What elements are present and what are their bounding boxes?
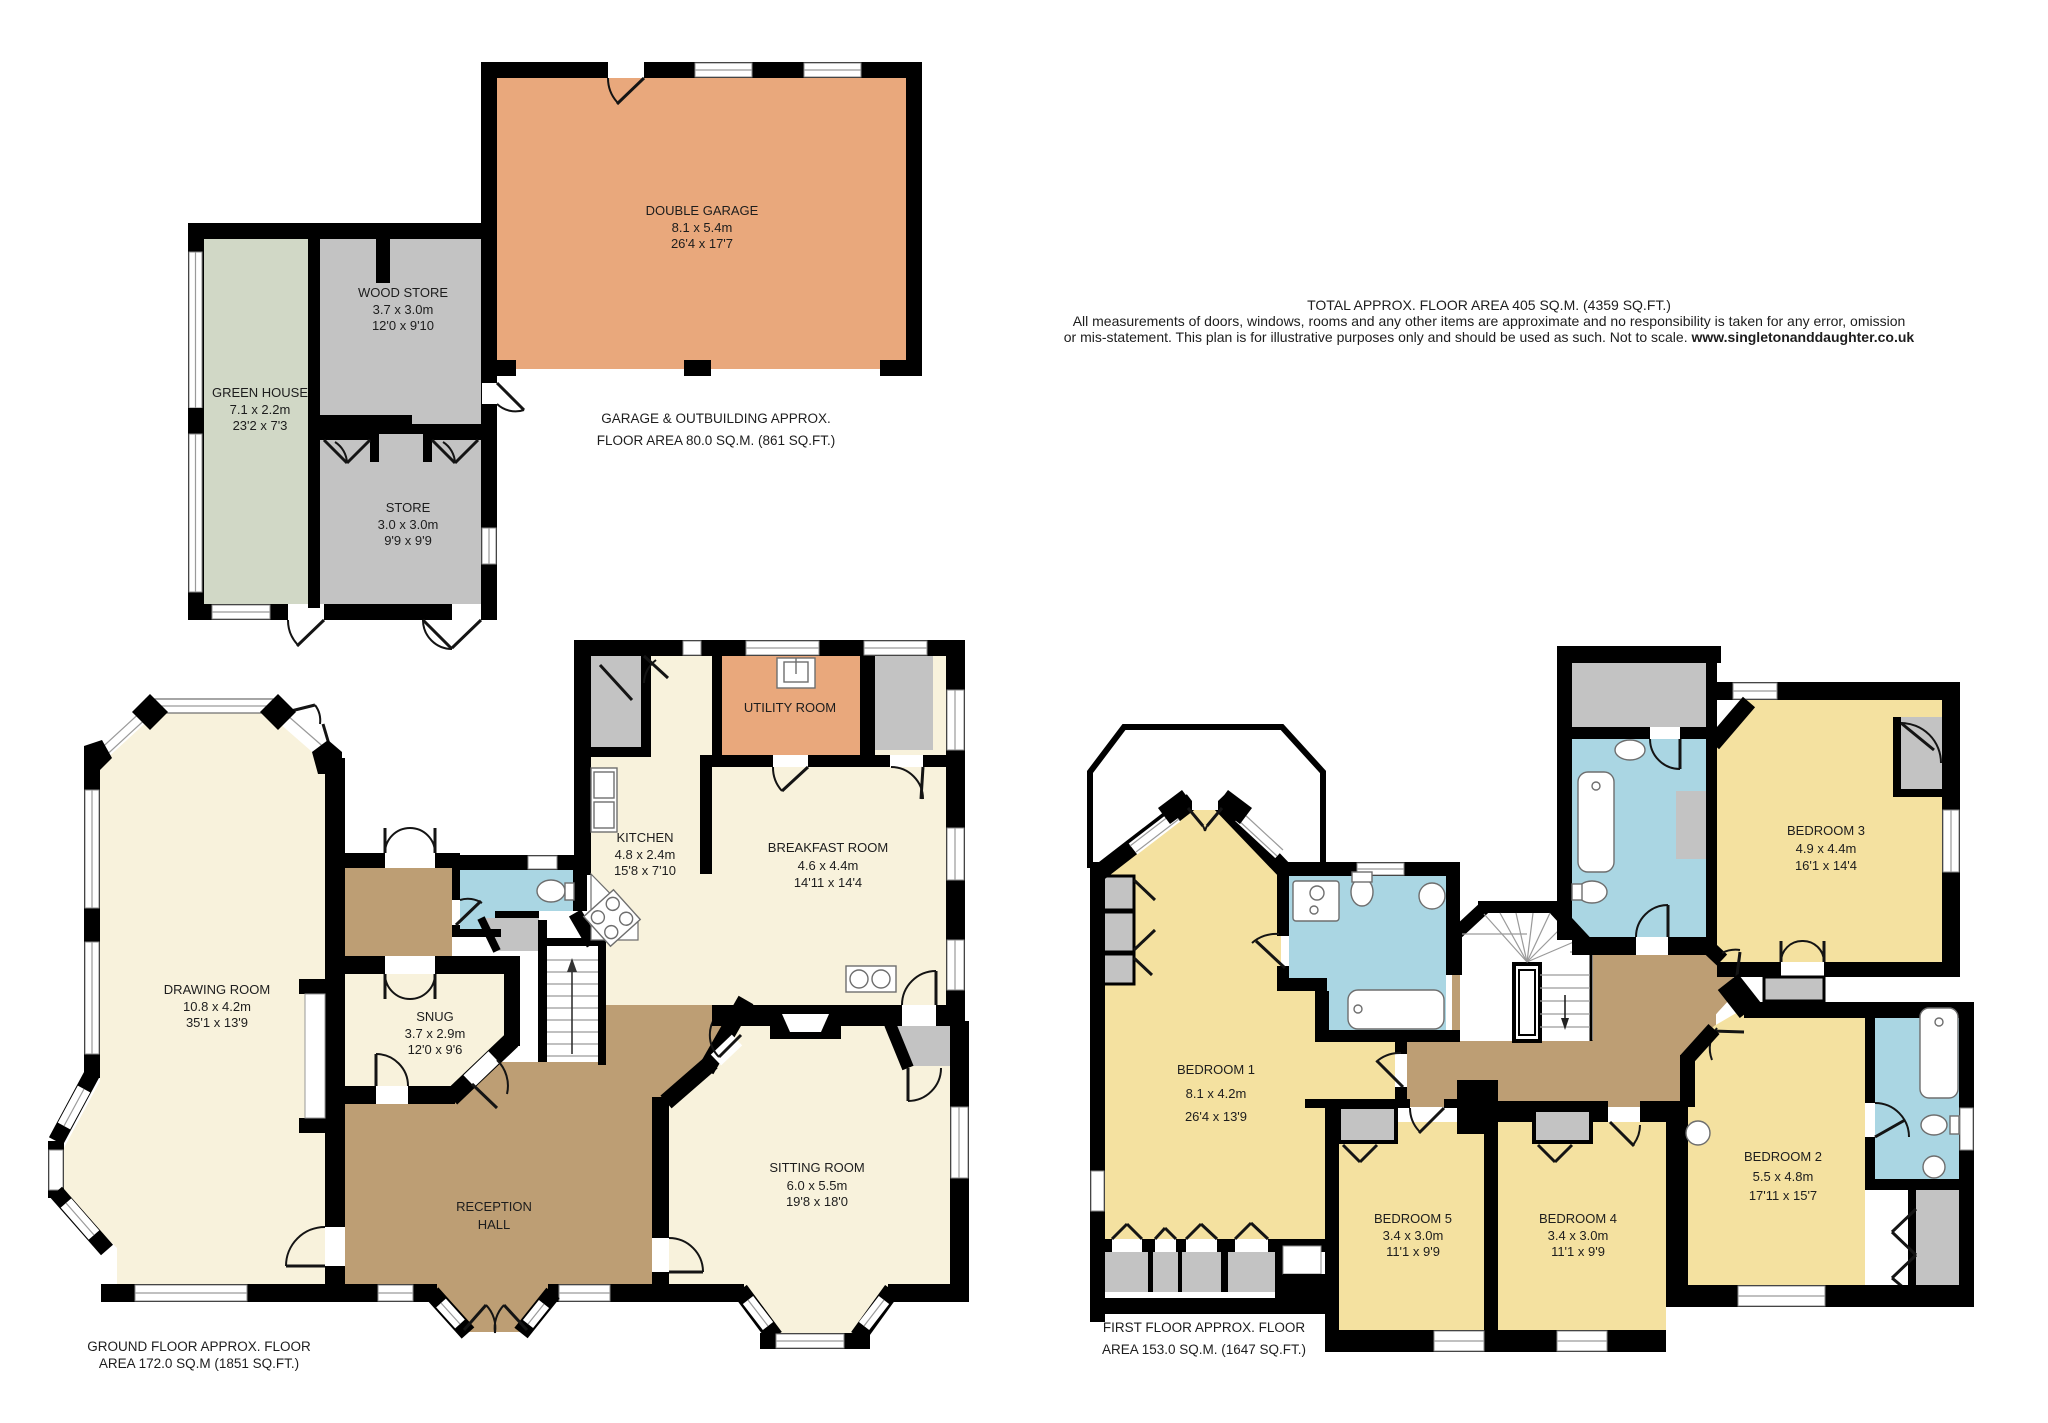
svg-text:26'4 x 17'7: 26'4 x 17'7: [671, 236, 733, 251]
svg-text:SNUG: SNUG: [416, 1009, 454, 1024]
svg-text:5.5 x 4.8m: 5.5 x 4.8m: [1753, 1169, 1814, 1184]
svg-text:8.1 x 5.4m: 8.1 x 5.4m: [672, 220, 733, 235]
svg-text:DRAWING ROOM: DRAWING ROOM: [164, 982, 270, 997]
svg-text:TOTAL APPROX. FLOOR AREA 405 S: TOTAL APPROX. FLOOR AREA 405 SQ.M. (4359…: [1307, 297, 1671, 313]
svg-text:STORE: STORE: [386, 500, 431, 515]
svg-text:KITCHEN: KITCHEN: [616, 830, 673, 845]
svg-text:BEDROOM 4: BEDROOM 4: [1539, 1211, 1617, 1226]
svg-text:16'1 x 14'4: 16'1 x 14'4: [1795, 858, 1857, 873]
svg-text:SITTING ROOM: SITTING ROOM: [769, 1160, 864, 1175]
svg-text:4.9 x 4.4m: 4.9 x 4.4m: [1796, 841, 1857, 856]
svg-text:WOOD STORE: WOOD STORE: [358, 285, 448, 300]
svg-text:RECEPTION: RECEPTION: [456, 1199, 532, 1214]
svg-text:14'11 x 14'4: 14'11 x 14'4: [794, 875, 862, 890]
svg-text:or mis-statement. This plan is: or mis-statement. This plan is for illus…: [1064, 329, 1915, 345]
svg-text:10.8 x 4.2m: 10.8 x 4.2m: [183, 999, 251, 1014]
svg-text:BEDROOM 5: BEDROOM 5: [1374, 1211, 1452, 1226]
svg-text:UTILITY ROOM: UTILITY ROOM: [744, 700, 836, 715]
svg-text:7.1 x 2.2m: 7.1 x 2.2m: [230, 402, 291, 417]
svg-text:4.8 x 2.4m: 4.8 x 2.4m: [615, 847, 676, 862]
svg-text:35'1 x 13'9: 35'1 x 13'9: [186, 1015, 248, 1030]
svg-text:12'0 x 9'6: 12'0 x 9'6: [408, 1042, 463, 1057]
svg-text:6.0 x 5.5m: 6.0 x 5.5m: [787, 1178, 848, 1193]
svg-text:3.4 x 3.0m: 3.4 x 3.0m: [1548, 1228, 1609, 1243]
svg-text:11'1 x 9'9: 11'1 x 9'9: [1386, 1244, 1440, 1259]
svg-text:BEDROOM 1: BEDROOM 1: [1177, 1062, 1255, 1077]
svg-text:AREA 153.0 SQ.M. (1647 SQ.FT.): AREA 153.0 SQ.M. (1647 SQ.FT.): [1102, 1342, 1306, 1357]
svg-text:23'2 x 7'3: 23'2 x 7'3: [233, 418, 288, 433]
svg-text:GARAGE & OUTBUILDING APPROX.: GARAGE & OUTBUILDING APPROX.: [601, 411, 831, 426]
svg-text:HALL: HALL: [478, 1217, 511, 1232]
svg-text:3.0 x 3.0m: 3.0 x 3.0m: [378, 517, 439, 532]
svg-text:3.7 x 3.0m: 3.7 x 3.0m: [373, 302, 434, 317]
svg-text:11'1 x 9'9: 11'1 x 9'9: [1551, 1244, 1605, 1259]
svg-text:All measurements of doors, win: All measurements of doors, windows, room…: [1073, 313, 1906, 329]
svg-text:9'9 x 9'9: 9'9 x 9'9: [384, 533, 432, 548]
svg-text:8.1 x 4.2m: 8.1 x 4.2m: [1186, 1086, 1247, 1101]
svg-text:GROUND FLOOR APPROX. FLOOR: GROUND FLOOR APPROX. FLOOR: [87, 1339, 311, 1354]
svg-text:3.7 x 2.9m: 3.7 x 2.9m: [405, 1026, 466, 1041]
svg-text:BEDROOM 2: BEDROOM 2: [1744, 1149, 1822, 1164]
svg-text:GREEN HOUSE: GREEN HOUSE: [212, 385, 308, 400]
svg-text:FIRST FLOOR APPROX. FLOOR: FIRST FLOOR APPROX. FLOOR: [1103, 1320, 1306, 1335]
svg-text:3.4 x 3.0m: 3.4 x 3.0m: [1383, 1228, 1444, 1243]
svg-text:DOUBLE GARAGE: DOUBLE GARAGE: [646, 203, 759, 218]
svg-text:15'8 x 7'10: 15'8 x 7'10: [614, 863, 676, 878]
svg-text:BEDROOM 3: BEDROOM 3: [1787, 823, 1865, 838]
svg-text:19'8 x 18'0: 19'8 x 18'0: [786, 1194, 848, 1209]
svg-text:17'11 x 15'7: 17'11 x 15'7: [1749, 1188, 1817, 1203]
svg-text:BREAKFAST ROOM: BREAKFAST ROOM: [768, 840, 888, 855]
svg-text:AREA 172.0 SQ.M (1851 SQ.FT.): AREA 172.0 SQ.M (1851 SQ.FT.): [99, 1356, 299, 1371]
svg-text:26'4 x 13'9: 26'4 x 13'9: [1185, 1109, 1247, 1124]
svg-text:12'0 x 9'10: 12'0 x 9'10: [372, 318, 434, 333]
svg-text:FLOOR AREA 80.0 SQ.M. (861 SQ.: FLOOR AREA 80.0 SQ.M. (861 SQ.FT.): [597, 433, 836, 448]
svg-text:4.6 x 4.4m: 4.6 x 4.4m: [798, 858, 859, 873]
